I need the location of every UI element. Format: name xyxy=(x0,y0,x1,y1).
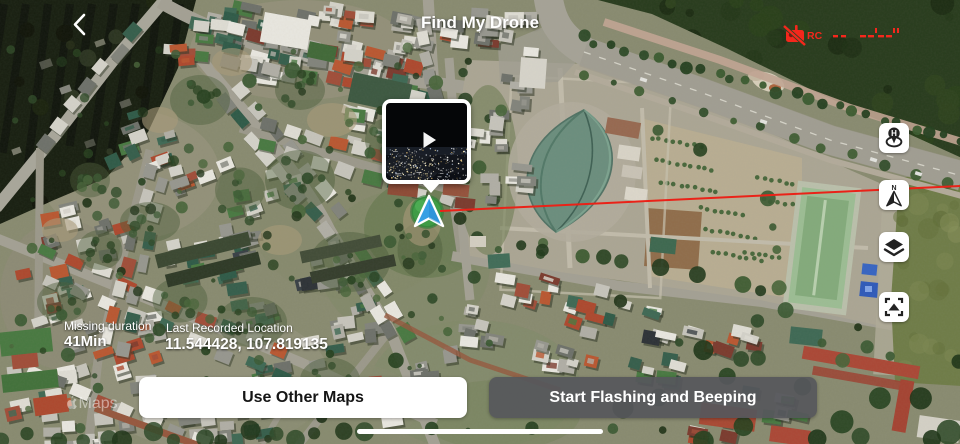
svg-text:Maps: Maps xyxy=(79,395,118,412)
svg-text:RC: RC xyxy=(807,30,823,42)
svg-text:H: H xyxy=(891,129,897,138)
svg-text:N: N xyxy=(891,185,896,192)
